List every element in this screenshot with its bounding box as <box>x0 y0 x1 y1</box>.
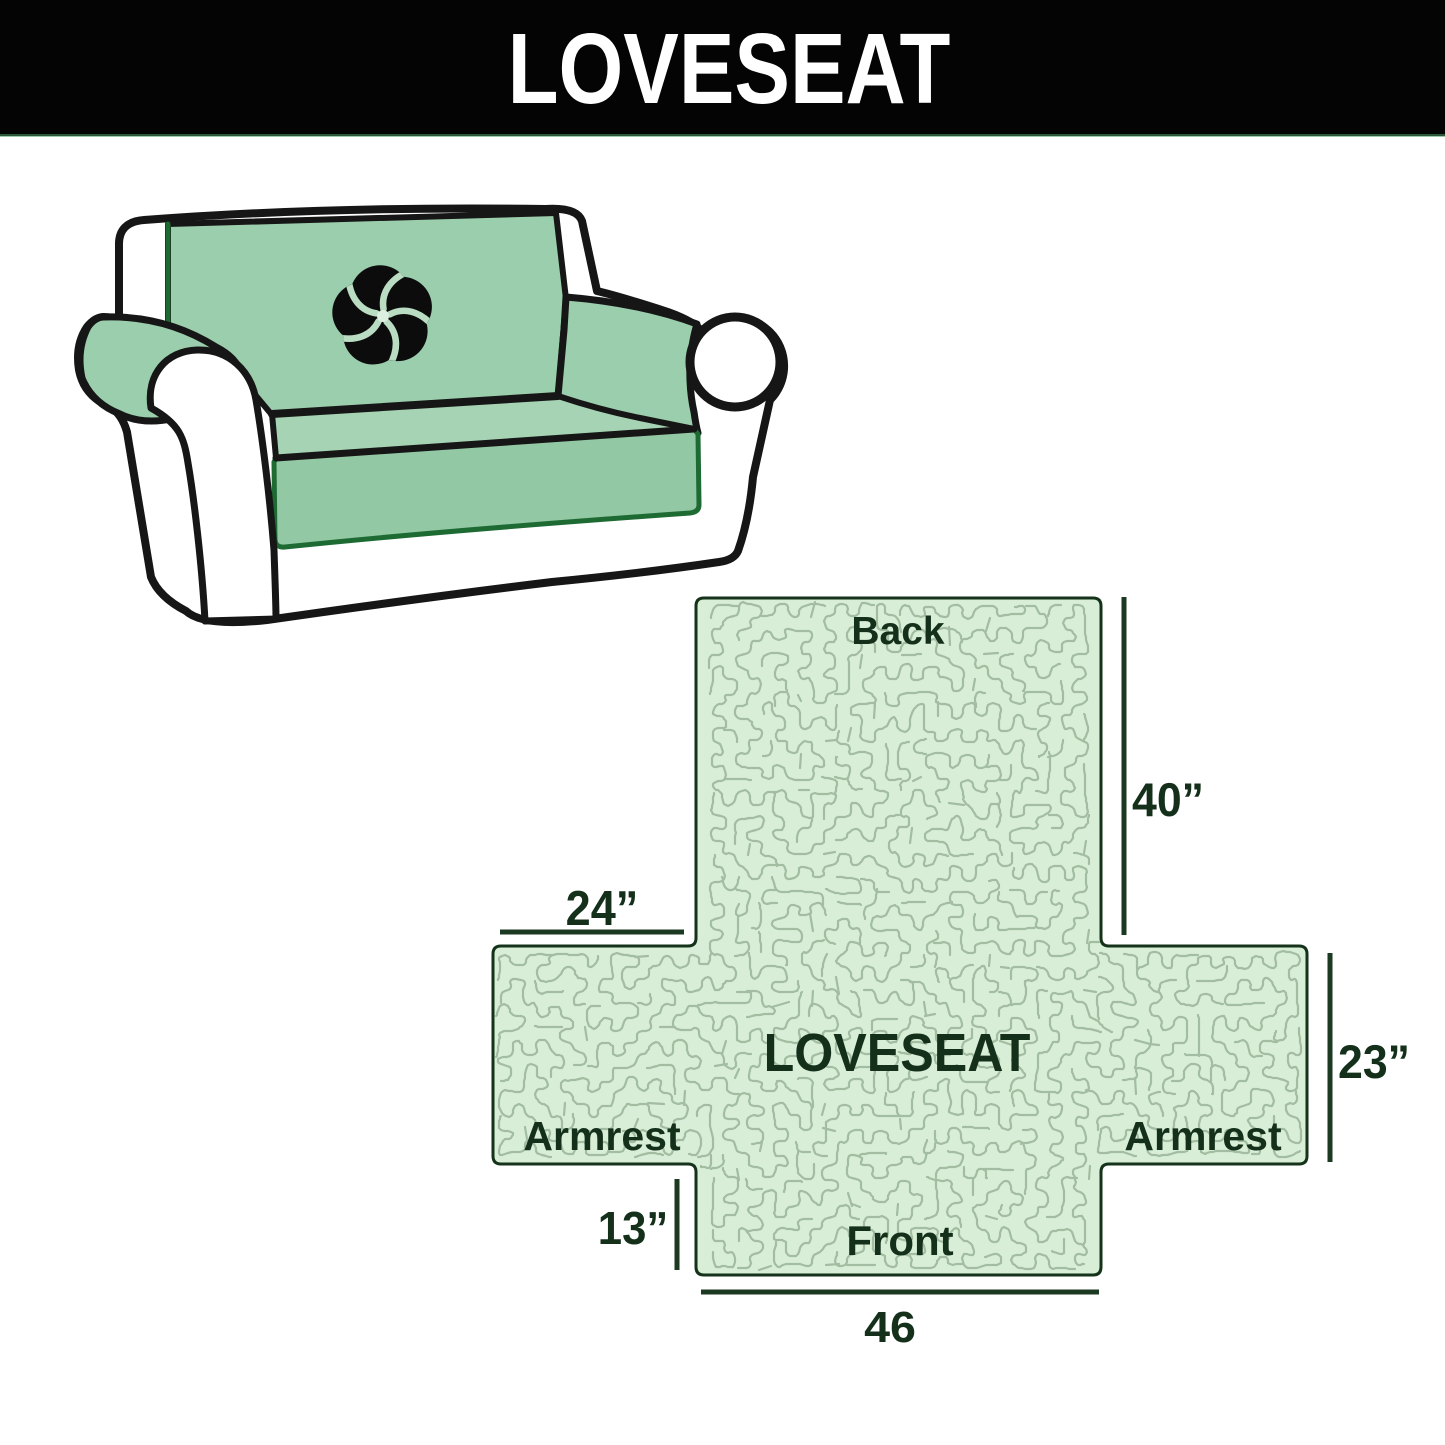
svg-text:Armrest: Armrest <box>523 1113 681 1159</box>
svg-text:LOVESEAT: LOVESEAT <box>508 13 951 125</box>
svg-text:Front: Front <box>846 1217 953 1264</box>
svg-text:46: 46 <box>864 1302 916 1351</box>
svg-text:Back: Back <box>851 610 945 653</box>
svg-text:LOVESEAT: LOVESEAT <box>764 1023 1031 1083</box>
svg-text:23”: 23” <box>1338 1036 1410 1088</box>
svg-text:24”: 24” <box>566 880 639 935</box>
svg-text:Armrest: Armrest <box>1124 1113 1282 1159</box>
svg-text:13”: 13” <box>598 1202 668 1254</box>
svg-text:40”: 40” <box>1132 774 1204 826</box>
